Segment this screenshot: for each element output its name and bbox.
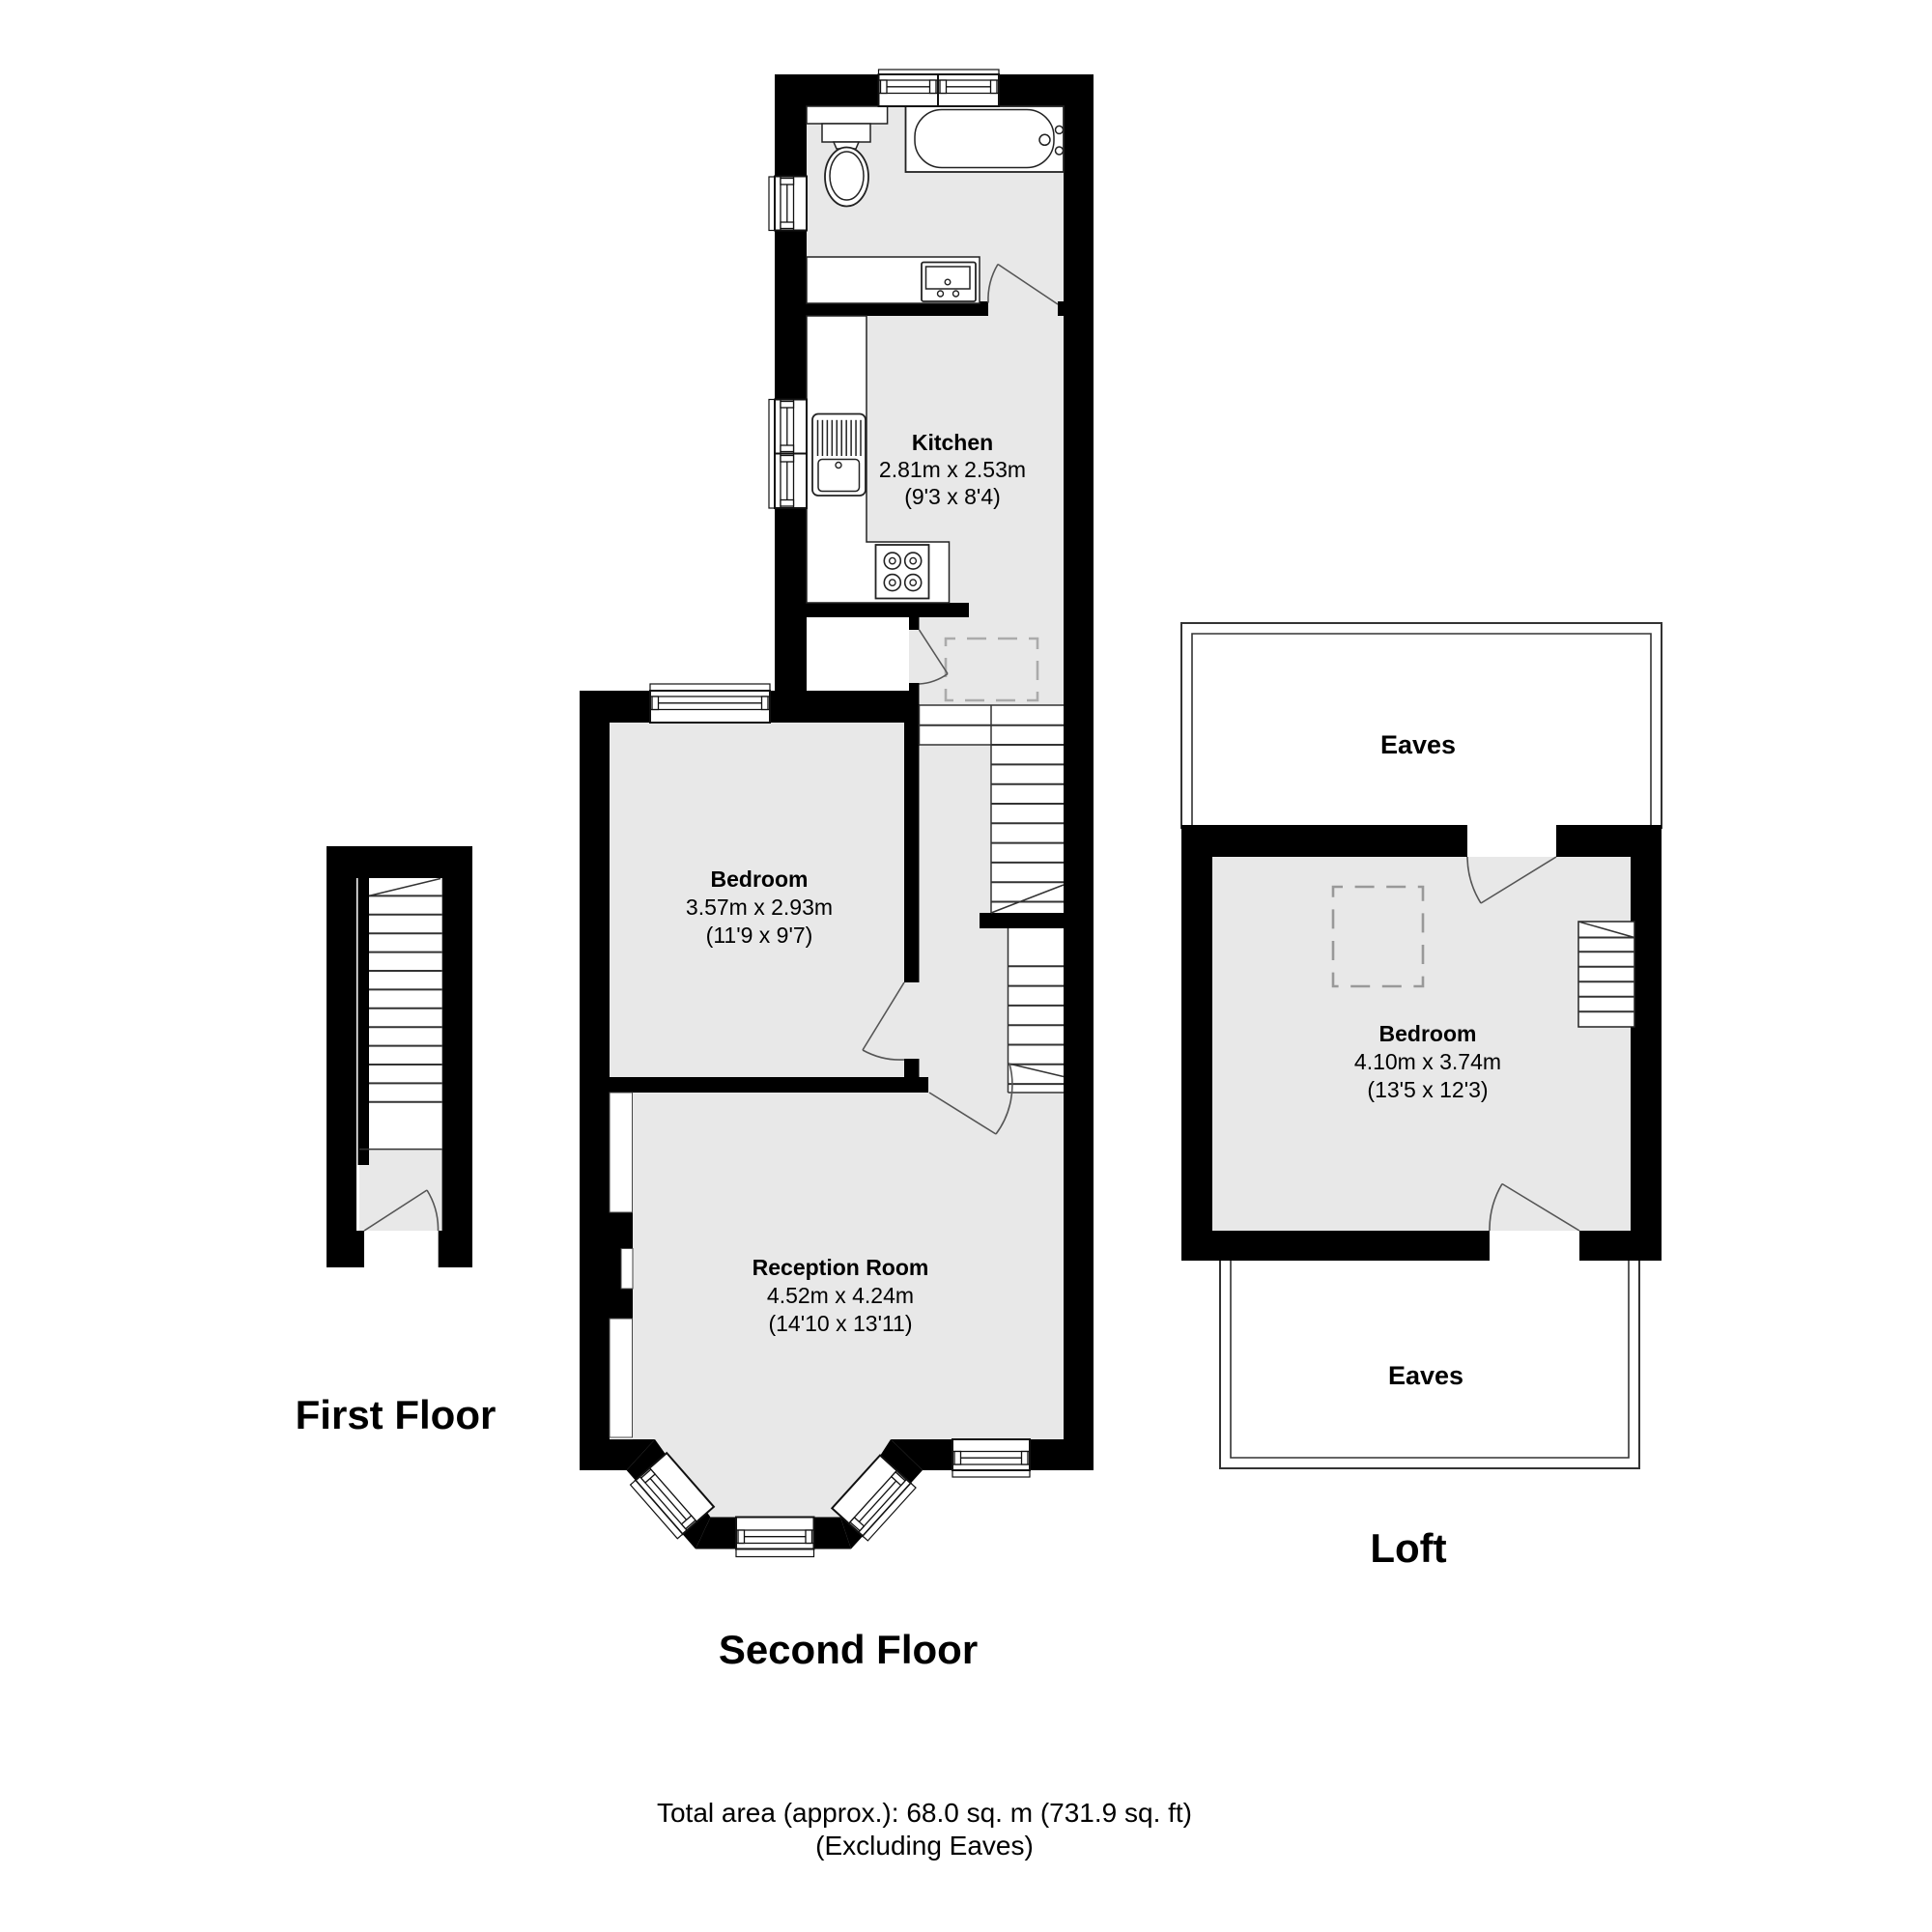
svg-text:2.81m x 2.53m: 2.81m x 2.53m bbox=[879, 457, 1026, 482]
svg-text:(13'5 x 12'3): (13'5 x 12'3) bbox=[1367, 1077, 1488, 1102]
svg-text:Eaves: Eaves bbox=[1388, 1361, 1463, 1390]
svg-text:Kitchen: Kitchen bbox=[912, 430, 993, 455]
svg-text:(11'9 x 9'7): (11'9 x 9'7) bbox=[706, 923, 813, 948]
svg-text:First Floor: First Floor bbox=[296, 1392, 497, 1437]
svg-text:4.10m x 3.74m: 4.10m x 3.74m bbox=[1354, 1049, 1501, 1074]
svg-text:3.57m x 2.93m: 3.57m x 2.93m bbox=[686, 895, 833, 920]
svg-text:Loft: Loft bbox=[1370, 1525, 1446, 1571]
svg-text:Bedroom: Bedroom bbox=[1379, 1021, 1477, 1046]
svg-text:(Excluding Eaves): (Excluding Eaves) bbox=[815, 1831, 1034, 1861]
svg-text:Reception Room: Reception Room bbox=[753, 1255, 929, 1280]
svg-text:Bedroom: Bedroom bbox=[711, 867, 809, 892]
svg-text:(9'3 x 8'4): (9'3 x 8'4) bbox=[904, 484, 1001, 509]
svg-text:Total area (approx.): 68.0 sq.: Total area (approx.): 68.0 sq. m (731.9 … bbox=[657, 1798, 1192, 1828]
svg-text:(14'10 x 13'11): (14'10 x 13'11) bbox=[768, 1311, 912, 1336]
svg-text:4.52m x 4.24m: 4.52m x 4.24m bbox=[767, 1283, 914, 1308]
svg-text:Second Floor: Second Floor bbox=[719, 1627, 978, 1672]
svg-text:Eaves: Eaves bbox=[1380, 730, 1456, 759]
